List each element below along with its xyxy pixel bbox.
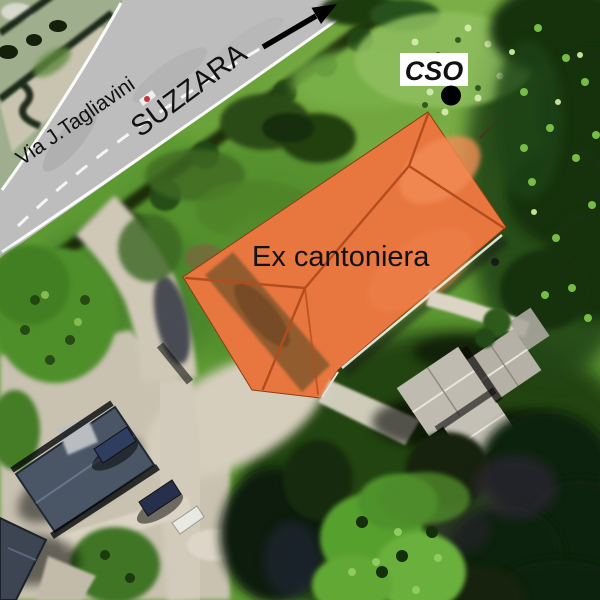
- aerial-map-figure: Via J.Tagliavini SUZZARA CSO Ex cantonie…: [0, 0, 600, 600]
- cso-marker-dot-icon: [441, 86, 461, 106]
- aerial-photo: Via J.Tagliavini SUZZARA CSO Ex cantonie…: [0, 0, 600, 600]
- building-name-label: Ex cantoniera: [252, 241, 430, 273]
- right-tree-canopy: [490, 0, 600, 330]
- cso-label: CSO: [405, 56, 464, 86]
